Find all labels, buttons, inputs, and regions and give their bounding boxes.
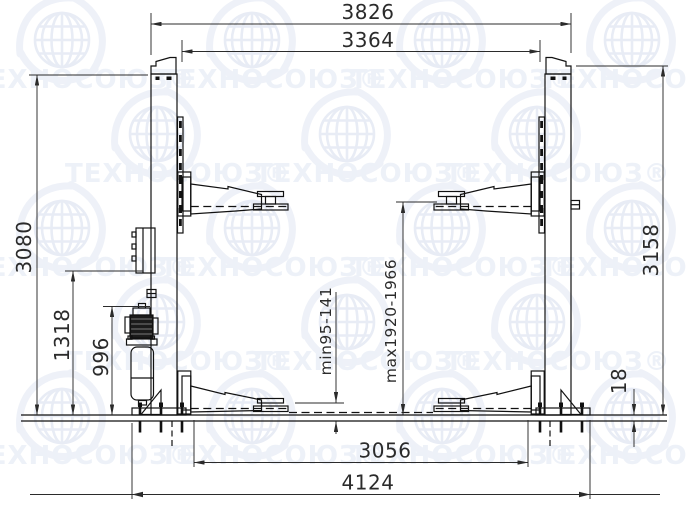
watermark-text: ТЕХНОСОЮЗ®	[445, 347, 671, 377]
dim-overall-height-right: 3158	[639, 224, 663, 277]
watermark-text: ТЕХНОСОЮЗ®	[445, 159, 671, 189]
dim-overall-width-bottom: 4124	[342, 471, 395, 495]
dim-base-thickness: 18	[607, 368, 631, 394]
dim-column-height-left: 3080	[12, 221, 36, 274]
drawing-page: ТЕХНОСОЮЗ® ТЕХНОСОЮЗ® ТЕХНОСОЮЗ® ТЕХНОСО…	[0, 0, 687, 508]
dim-inner-width-bottom: 3056	[359, 439, 412, 463]
dim-pad-min-height: min95-141	[317, 287, 335, 376]
watermark-text: ТЕХНОСОЮЗ®	[540, 65, 687, 95]
watermark-text: ТЕХНОСОЮЗ®	[540, 441, 687, 471]
dim-power-unit-height: 996	[89, 337, 113, 377]
floor-lines	[21, 415, 667, 421]
dim-overall-width-top: 3826	[342, 0, 395, 24]
dim-control-box-height: 1318	[50, 309, 74, 362]
two-post-lift-technical-drawing: ТЕХНОСОЮЗ® ТЕХНОСОЮЗ® ТЕХНОСОЮЗ® ТЕХНОСО…	[0, 0, 687, 508]
dim-pad-max-height: max1920-1966	[382, 259, 400, 383]
watermark-text: ТЕХНОСОЮЗ®	[540, 253, 687, 283]
right-column-bracket	[571, 201, 580, 210]
dim-inner-width-top: 3364	[342, 28, 395, 52]
